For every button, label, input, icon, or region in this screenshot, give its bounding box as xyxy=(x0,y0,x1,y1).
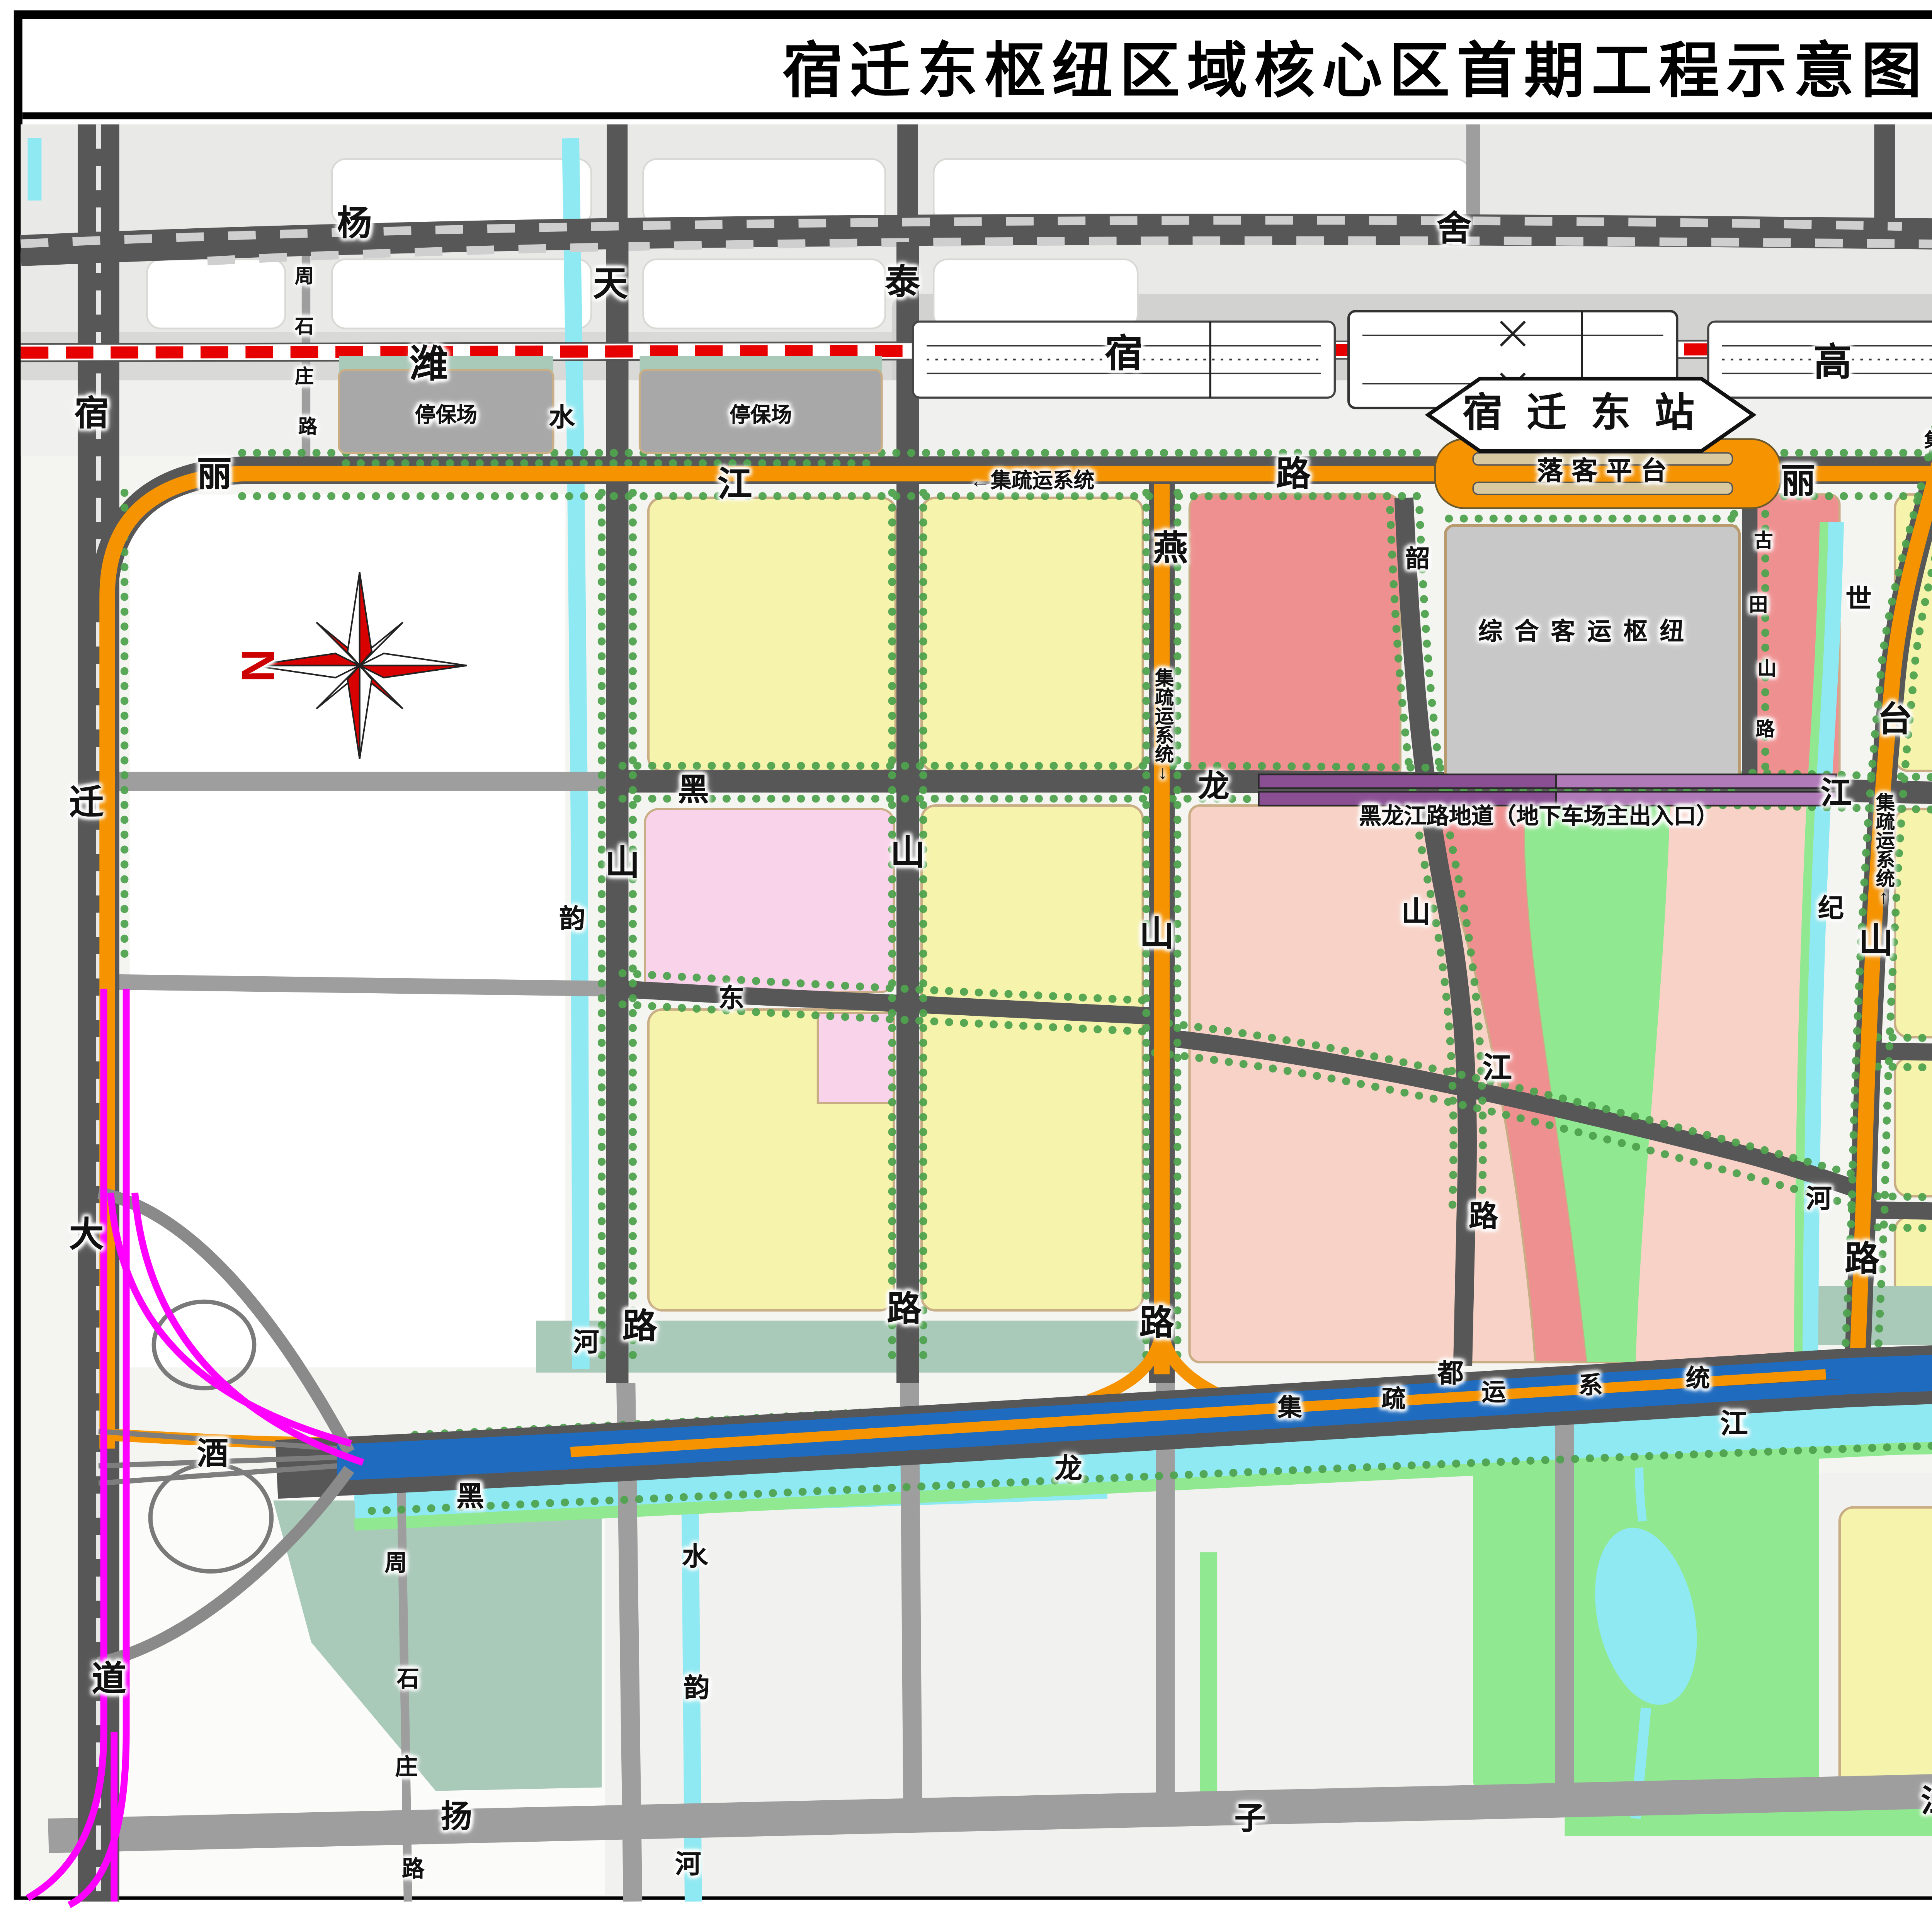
page-title: 宿迁东枢纽区域核心区首期工程示意图 xyxy=(782,22,1929,110)
map-canvas xyxy=(0,0,1932,1917)
riverside-park xyxy=(1473,1449,1819,1819)
map-stage: 潍宿高铁杨舍路宿迁大道周石庄路周石庄路丽江路丽江路←集疏运系统集疏运系统←天山路… xyxy=(0,0,1932,1917)
hub-block xyxy=(1446,525,1740,781)
title-bar: 宿迁东枢纽区域核心区首期工程示意图 xyxy=(22,19,1932,119)
depot-block-1 xyxy=(339,370,553,453)
depot-block-2 xyxy=(640,370,882,453)
station-badge xyxy=(1428,379,1753,451)
river-shuiyun-north xyxy=(571,138,581,1369)
